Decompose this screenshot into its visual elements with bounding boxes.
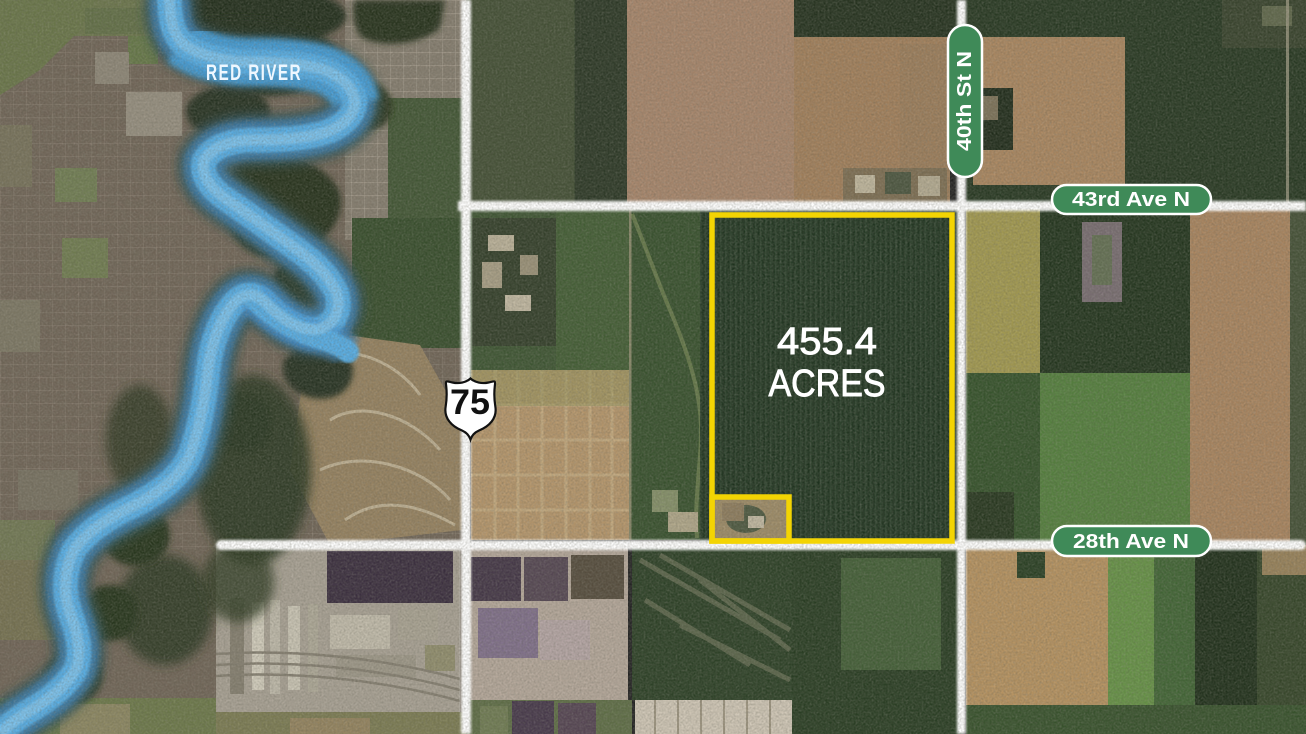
svg-text:455.4: 455.4 bbox=[777, 321, 877, 363]
svg-text:40th St N: 40th St N bbox=[954, 51, 976, 151]
svg-text:RED RIVER: RED RIVER bbox=[206, 60, 302, 85]
svg-text:75: 75 bbox=[450, 383, 490, 422]
svg-text:28th Ave N: 28th Ave N bbox=[1073, 531, 1189, 553]
svg-text:ACRES: ACRES bbox=[769, 363, 886, 405]
svg-text:43rd Ave N: 43rd Ave N bbox=[1072, 189, 1190, 211]
